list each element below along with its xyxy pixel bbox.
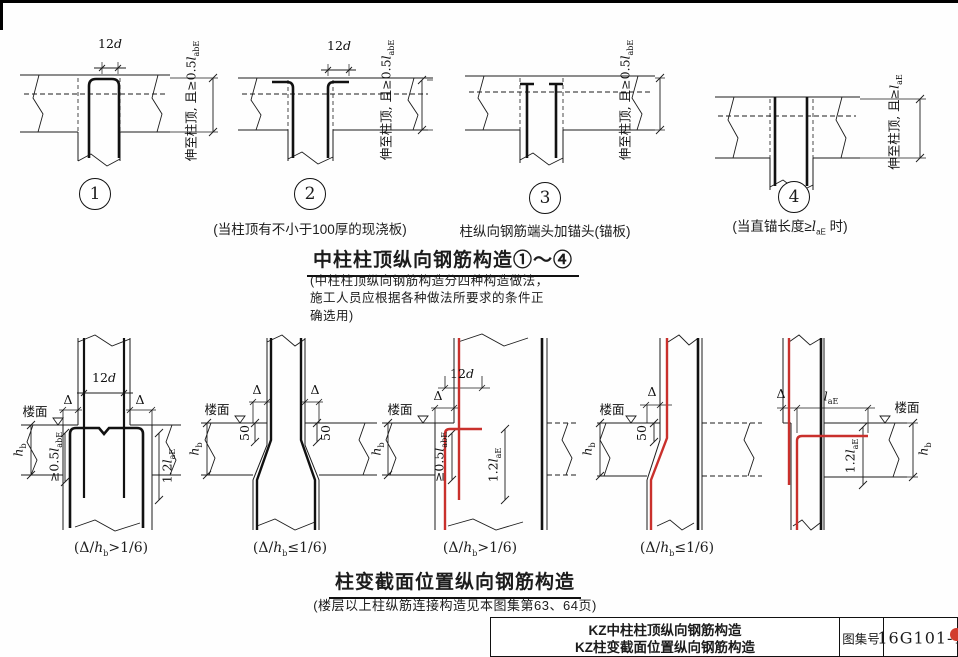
title-block-line2: KZ柱变截面位置纵向钢筋构造 [575,636,755,656]
detail-column-top-1: 12d 伸至柱顶, 且≥0.5labE 1 [8,28,228,243]
rebar-anchor-heads [520,84,563,158]
atlas-number-value: 16G101-1 [877,629,958,648]
dim-05labe: ≥0.5labE [48,432,64,482]
detail-section-change-3: 12d Δ 楼面 hb ≥0.5labE 1.2laE (Δ/hb>1/6) [378,330,582,558]
dim-12d: 12d [327,40,351,53]
dim-12d: 12d [92,372,116,385]
dim-05labe: ≥0.5labE [433,432,449,482]
dim-lae: laE [824,390,839,406]
title-block-divider-1 [839,618,840,656]
dim-12d: 12d [98,38,122,51]
dim-delta-right: Δ [310,384,319,397]
note-line: (中柱柱顶纵向钢筋构造分四种构造做法， [310,273,570,290]
detail-number-1: 1 [79,178,111,210]
rebar-red-inclined [651,338,667,530]
section-change-2-caption: (Δ/hb≤1/6) [253,540,327,558]
note-line: 确选用) [310,308,570,325]
section-change-1-drawing [15,330,190,535]
rebar-straight [775,97,807,186]
floor-level-label: 楼面 [387,404,412,417]
dim-extend-to-column-top: 伸至柱顶, 且≥0.5labE [380,40,396,161]
dim-12d: 12d [450,368,474,381]
atlas-number-label: 图集号 [842,629,880,648]
title-block: KZ中柱柱顶纵向钢筋构造 KZ柱变截面位置纵向钢筋构造 图集号 16G101-1 [490,617,958,657]
detail-2-caption: (当柱顶有不小于100厚的现浇板) [213,218,407,238]
rebar-bent-u [89,79,119,158]
detail-section-change-4: Δ 楼面 50 hb (Δ/hb≤1/6) [582,330,770,558]
note-line: 施工人员应根据各种做法所要求的条件正 [310,290,570,307]
scan-edge-left [0,0,3,30]
dim-delta-left: Δ [252,384,261,397]
floor-level-label: 楼面 [22,406,47,419]
dim-12lae: 1.2laE [161,449,177,484]
detail-4-caption: (当直锚长度≥laE 时) [732,215,847,237]
rebar-upper-bars [84,338,124,498]
detail-section-change-1: 12d Δ Δ 楼面 hb ≥0.5labE 1.2laE (Δ/hb>1/6) [15,330,190,558]
floor-level-label: 楼面 [599,404,624,417]
section-note-section-change: (楼层以上柱纵筋连接构造见本图集第63、64页) [313,597,597,615]
dim-hb: hb [581,442,597,455]
detail-column-top-3: 伸至柱顶, 且≥0.5labE 3 柱纵向钢筋端头加锚头(锚板) [455,28,690,243]
dim-extend-to-column-top: 伸至柱顶, 且≥0.5labE [185,41,201,162]
scan-edge-top [0,0,958,3]
dim-delta: Δ [647,386,656,399]
dim-50-left: 50 [239,425,252,441]
dim-12lae: 1.2laE [487,448,503,483]
detail-3-caption: 柱纵向钢筋端头加锚头(锚板) [460,220,631,240]
section-change-5-drawing [765,330,958,535]
section-change-4-caption: (Δ/hb≤1/6) [640,540,714,558]
dim-extend-to-column-top: 伸至柱顶, 且≥0.5labE [619,40,635,161]
rebar-inclined-bars [257,338,315,530]
section-change-3-drawing [378,330,582,535]
dim-delta: Δ [433,390,442,403]
dim-delta-left: Δ [63,394,72,407]
dim-50: 50 [636,425,649,441]
detail-number-2: 2 [294,178,326,210]
dim-12lae: 1.2laE [844,439,860,474]
drawing-sheet: 12d 伸至柱顶, 且≥0.5labE 1 [0,0,958,657]
rebar-red-bars [789,338,868,530]
dim-delta: Δ [776,388,785,401]
detail-2-drawing [228,28,458,203]
detail-number-3: 3 [529,182,561,214]
floor-level-label: 楼面 [204,404,229,417]
section-change-2-drawing [195,330,385,535]
floor-level-label: 楼面 [894,402,919,415]
section-change-4-drawing [582,330,770,535]
dim-hb: hb [12,443,28,456]
dim-delta-right: Δ [135,394,144,407]
dim-50-right: 50 [320,425,333,441]
section-title-section-change: 柱变截面位置纵向钢筋构造 [329,567,581,599]
dim-extend-to-column-top: 伸至柱顶, 且≥laE [888,74,904,170]
red-seal-mark [950,628,958,641]
dim-hb: hb [917,442,933,455]
detail-number-4: 4 [778,181,810,213]
section-change-1-caption: (Δ/hb>1/6) [74,540,148,558]
detail-4-drawing [690,28,958,213]
section-note-column-top: (中柱柱顶纵向钢筋构造分四种构造做法， 施工人员应根据各种做法所要求的条件正 确… [310,273,570,325]
detail-3-drawing [455,28,690,203]
detail-column-top-2: 12d 伸至柱顶, 且≥0.5labE 2 (当柱顶有不小于100厚的现浇板) [228,28,458,243]
section-change-3-caption: (Δ/hb>1/6) [443,540,517,558]
rebar-hooks-outward [272,82,349,158]
dim-hb: hb [188,442,204,455]
detail-section-change-5: Δ laE 楼面 1.2laE hb [765,330,958,558]
detail-section-change-2: Δ Δ 楼面 50 50 hb (Δ/hb≤1/6) [195,330,385,558]
dim-hb: hb [370,442,386,455]
detail-column-top-4: 伸至柱顶, 且≥laE 4 (当直锚长度≥laE 时) [690,28,958,243]
rebar-lower-bent-u [70,428,143,528]
